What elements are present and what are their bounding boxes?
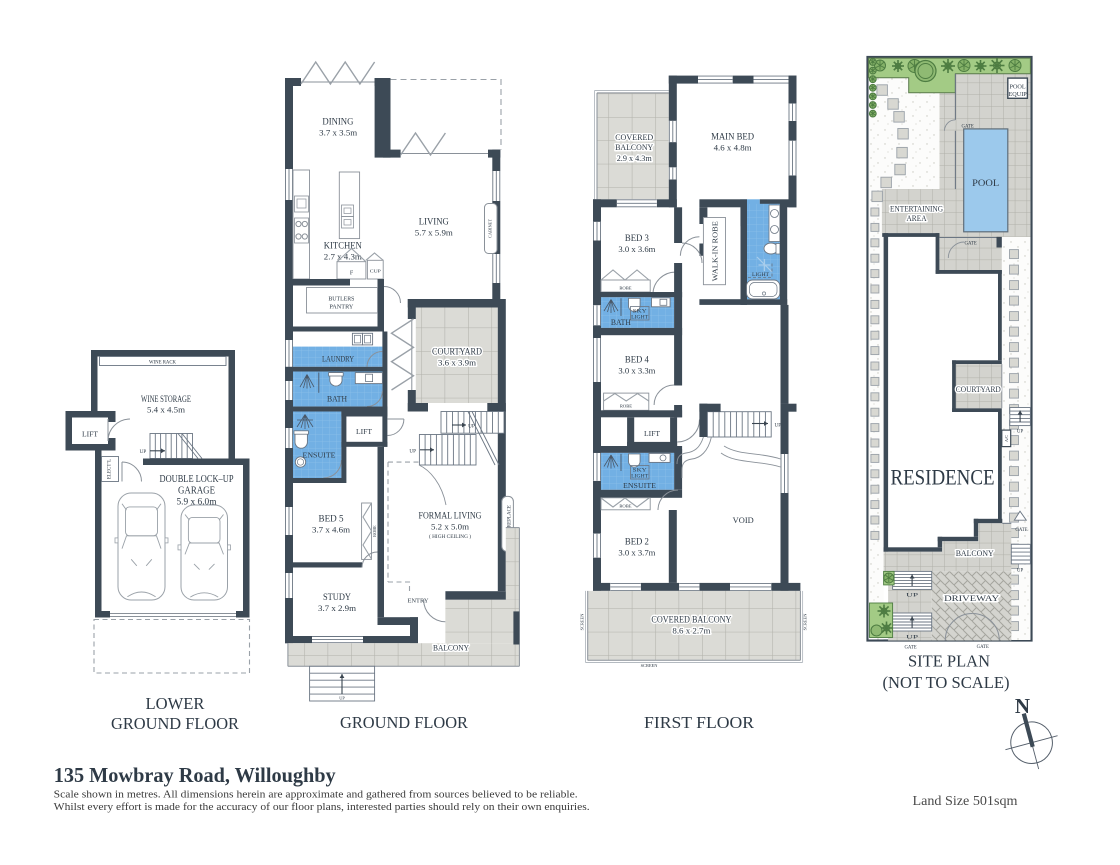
svg-text:FORMAL LIVING: FORMAL LIVING xyxy=(419,511,482,521)
svg-text:CABINET: CABINET xyxy=(488,219,493,238)
svg-text:VOID: VOID xyxy=(733,516,754,525)
svg-text:SCREEN: SCREEN xyxy=(803,613,808,631)
svg-text:SCREEN: SCREEN xyxy=(641,663,659,668)
svg-text:UP: UP xyxy=(906,636,918,641)
svg-text:3.7 x 3.5m: 3.7 x 3.5m xyxy=(319,128,357,138)
svg-text:GATE: GATE xyxy=(962,125,974,130)
svg-text:COVERED BALCONY: COVERED BALCONY xyxy=(651,614,731,625)
svg-text:BALCONY: BALCONY xyxy=(956,549,994,558)
svg-text:BUTLERS: BUTLERS xyxy=(328,296,354,303)
svg-text:LOWER: LOWER xyxy=(146,694,206,713)
svg-text:BALCONY: BALCONY xyxy=(615,143,653,152)
svg-text:BED 4: BED 4 xyxy=(625,355,649,365)
svg-text:Whilst every effort is made fo: Whilst every effort is made for the accu… xyxy=(54,801,590,813)
svg-text:LIFT: LIFT xyxy=(644,429,660,438)
svg-text:LIGHT: LIGHT xyxy=(631,316,648,321)
svg-text:CUP: CUP xyxy=(370,269,382,274)
svg-text:ELECT’L: ELECT’L xyxy=(108,459,113,479)
svg-text:GARAGE: GARAGE xyxy=(178,486,215,497)
svg-text:BATH: BATH xyxy=(327,395,347,404)
svg-text:5.4 x 4.5m: 5.4 x 4.5m xyxy=(147,405,185,415)
svg-text:UP: UP xyxy=(1017,430,1024,435)
svg-text:UP: UP xyxy=(906,594,918,599)
svg-text:EQUIP: EQUIP xyxy=(1008,91,1027,98)
svg-text:DOUBLE LOCK–UP: DOUBLE LOCK–UP xyxy=(160,474,234,485)
svg-text:A/C: A/C xyxy=(1004,435,1009,442)
svg-text:4.6 x 4.8m: 4.6 x 4.8m xyxy=(714,143,752,153)
svg-text:ROBE: ROBE xyxy=(619,286,631,291)
svg-text:Scale shown in metres. All dim: Scale shown in metres. All dimensions he… xyxy=(54,789,578,801)
svg-text:AREA: AREA xyxy=(907,214,927,223)
svg-text:DRIVEWAY: DRIVEWAY xyxy=(944,593,999,603)
svg-text:ROBE: ROBE xyxy=(372,525,377,537)
svg-text:PANTRY: PANTRY xyxy=(329,304,353,311)
svg-text:COVERED: COVERED xyxy=(615,133,653,142)
svg-text:BED 3: BED 3 xyxy=(625,233,649,243)
svg-text:ENSUITE: ENSUITE xyxy=(303,451,336,460)
svg-text:GATE: GATE xyxy=(977,645,989,650)
svg-text:STUDY: STUDY xyxy=(323,593,351,603)
svg-text:3.0 x 3.6m: 3.0 x 3.6m xyxy=(618,244,655,254)
svg-text:UP: UP xyxy=(140,449,147,455)
svg-text:WALK-IN ROBE: WALK-IN ROBE xyxy=(711,221,720,282)
svg-text:RESIDENCE: RESIDENCE xyxy=(891,465,995,490)
svg-text:GATE: GATE xyxy=(904,646,916,651)
svg-text:LIGHT: LIGHT xyxy=(752,273,769,278)
svg-text:UP: UP xyxy=(1017,569,1024,574)
svg-text:WINE RACK: WINE RACK xyxy=(149,359,176,365)
svg-text:COURTYARD: COURTYARD xyxy=(432,347,482,357)
svg-text:3.0 x 3.3m: 3.0 x 3.3m xyxy=(618,366,655,376)
svg-text:GROUND FLOOR: GROUND FLOOR xyxy=(111,714,240,733)
svg-text:( HIGH CEILING ): ( HIGH CEILING ) xyxy=(429,533,471,540)
svg-text:GATE: GATE xyxy=(965,242,977,247)
svg-text:3.7 x 2.9m: 3.7 x 2.9m xyxy=(318,603,356,613)
svg-text:135 Mowbray Road, Willoughby: 135 Mowbray Road, Willoughby xyxy=(54,763,336,787)
svg-text:3.6 x 3.9m: 3.6 x 3.9m xyxy=(438,357,476,367)
svg-text:ENSUITE: ENSUITE xyxy=(623,481,656,490)
svg-text:BALCONY: BALCONY xyxy=(433,643,469,652)
svg-text:ROBE: ROBE xyxy=(620,404,632,409)
svg-text:LIFT: LIFT xyxy=(82,430,98,439)
svg-text:8.6 x 2.7m: 8.6 x 2.7m xyxy=(672,626,710,636)
svg-text:LAUNDRY: LAUNDRY xyxy=(322,354,354,363)
svg-text:Land Size 501sqm: Land Size 501sqm xyxy=(913,793,1019,808)
svg-text:SKY: SKY xyxy=(633,310,648,315)
svg-text:ENTRY: ENTRY xyxy=(408,598,429,605)
svg-text:ENTERTAINING: ENTERTAINING xyxy=(890,205,943,214)
svg-text:BED 2: BED 2 xyxy=(625,537,649,547)
svg-text:3.7 x 4.6m: 3.7 x 4.6m xyxy=(312,525,350,535)
svg-text:POOL: POOL xyxy=(1010,84,1026,91)
svg-text:BATH: BATH xyxy=(611,318,631,327)
svg-text:KITCHEN: KITCHEN xyxy=(324,242,362,252)
svg-text:SKY: SKY xyxy=(633,469,648,474)
svg-text:GATE: GATE xyxy=(1015,528,1027,533)
svg-text:UP: UP xyxy=(775,423,782,429)
svg-text:POOL: POOL xyxy=(972,178,999,188)
svg-text:WINE STORAGE: WINE STORAGE xyxy=(141,394,191,404)
svg-text:5.2 x 5.0m: 5.2 x 5.0m xyxy=(431,522,469,532)
svg-text:DINING: DINING xyxy=(322,118,353,128)
svg-text:BED 5: BED 5 xyxy=(319,514,345,524)
svg-text:ROBE: ROBE xyxy=(619,504,631,509)
svg-text:MAIN BED: MAIN BED xyxy=(711,133,754,143)
svg-text:N: N xyxy=(1015,694,1030,718)
svg-text:LIFT: LIFT xyxy=(356,427,372,436)
svg-text:5.7 x 5.9m: 5.7 x 5.9m xyxy=(415,228,453,238)
svg-text:FIRST FLOOR: FIRST FLOOR xyxy=(644,713,755,732)
svg-text:LIGHT: LIGHT xyxy=(631,475,648,480)
svg-text:UP: UP xyxy=(339,696,345,701)
svg-text:3.0 x 3.7m: 3.0 x 3.7m xyxy=(618,548,655,558)
svg-text:2.9 x 4.3m: 2.9 x 4.3m xyxy=(617,154,652,163)
svg-text:COURTYARD: COURTYARD xyxy=(956,385,1001,394)
svg-text:GROUND FLOOR: GROUND FLOOR xyxy=(340,713,469,732)
svg-text:SCREEN: SCREEN xyxy=(580,613,585,631)
svg-text:UP: UP xyxy=(409,449,416,455)
svg-text:(NOT TO SCALE): (NOT TO SCALE) xyxy=(883,673,1010,692)
svg-text:SITE PLAN: SITE PLAN xyxy=(908,652,990,671)
svg-text:LIVING: LIVING xyxy=(419,218,449,228)
